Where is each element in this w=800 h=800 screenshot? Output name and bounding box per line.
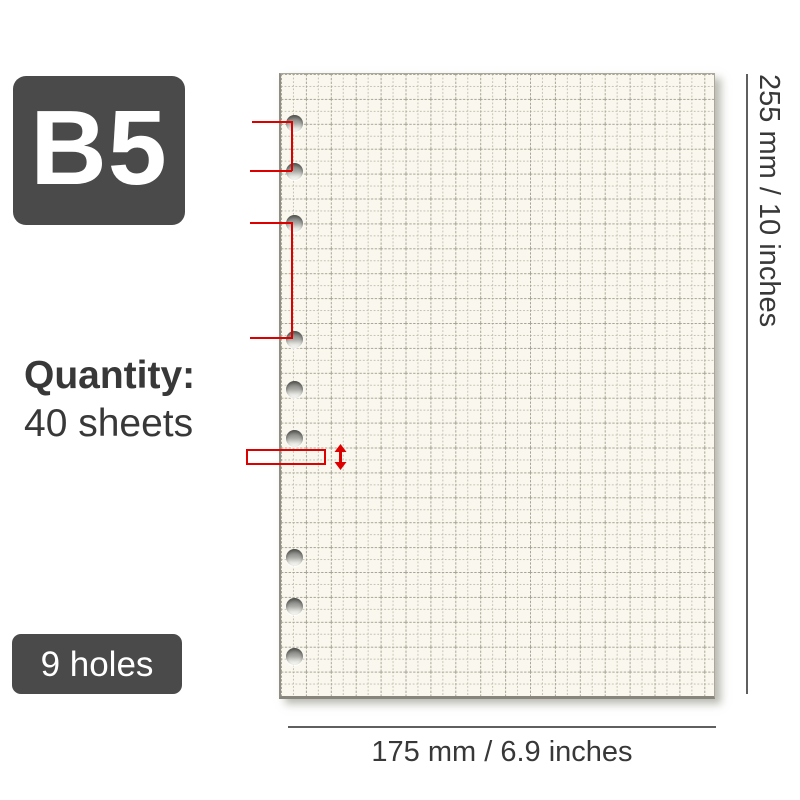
binder-hole	[286, 381, 303, 398]
holes-badge-label: 9 holes	[41, 647, 154, 682]
binder-hole	[286, 430, 303, 447]
vertical-spacing-arrow-icon	[333, 444, 348, 470]
binder-hole	[286, 331, 303, 348]
height-dimension-label: 255 mm / 10 inches	[752, 74, 785, 694]
binder-hole	[286, 215, 303, 232]
holes-badge: 9 holes	[12, 634, 182, 694]
binder-hole	[286, 648, 303, 665]
size-badge-label: B5	[30, 95, 168, 207]
hole-callout-line	[250, 337, 293, 339]
width-dimension-label: 175 mm / 6.9 inches	[288, 736, 716, 769]
quantity-label: Quantity:	[24, 352, 195, 400]
height-dimension-line	[746, 74, 748, 694]
hole-callout-line	[291, 121, 293, 171]
quantity-block: Quantity: 40 sheets	[24, 352, 195, 449]
size-badge: B5	[13, 76, 185, 225]
binder-hole	[286, 598, 303, 615]
grid-pattern	[281, 74, 714, 696]
hole-callout-line	[291, 222, 293, 339]
paper-sheet	[279, 73, 715, 699]
hole-callout-line	[250, 170, 292, 172]
hole-callout-line	[250, 222, 293, 224]
binder-hole	[286, 163, 303, 180]
hole-callout-line	[252, 121, 292, 123]
binder-hole	[286, 115, 303, 132]
product-infographic: B5 Quantity: 40 sheets 9 holes 255 mm / …	[0, 0, 800, 800]
width-dimension-line	[288, 726, 716, 728]
grid-spacing-highlight-rect	[246, 449, 326, 465]
quantity-value: 40 sheets	[24, 400, 195, 448]
binder-hole	[286, 549, 303, 566]
